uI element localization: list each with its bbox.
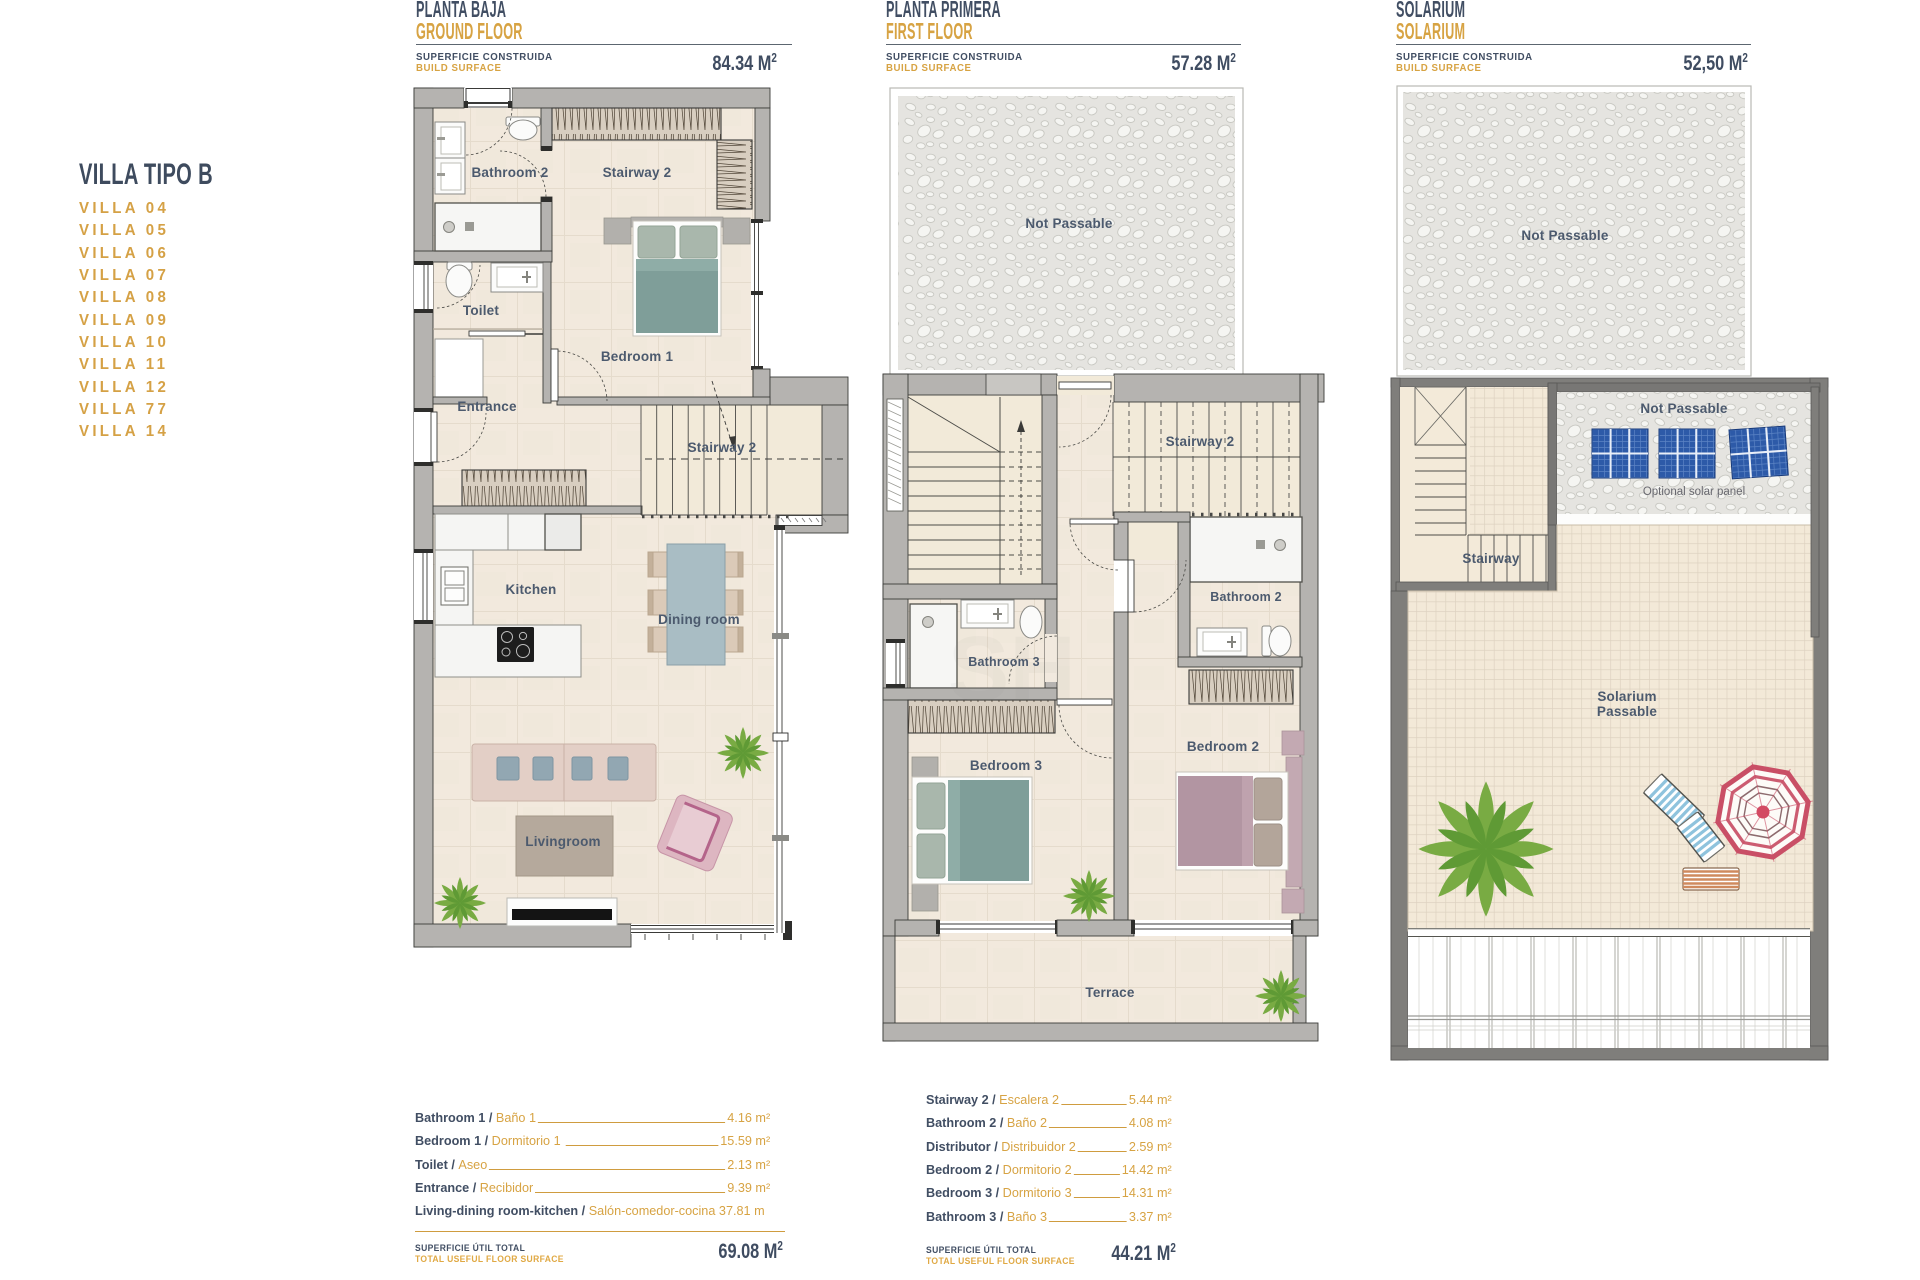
svg-text:Optional solar panel: Optional solar panel (1643, 486, 1745, 498)
svg-text:Stairway 2: Stairway 2 (1166, 434, 1235, 449)
svg-text:Toilet: Toilet (463, 303, 500, 318)
svg-text:Dining room: Dining room (658, 612, 740, 627)
svg-text:Entrance: Entrance (457, 399, 517, 414)
svg-text:Bathroom 2: Bathroom 2 (1210, 590, 1281, 604)
svg-text:Kitchen: Kitchen (506, 582, 557, 597)
svg-text:Stairway 2: Stairway 2 (688, 440, 757, 455)
svg-text:Not Passable: Not Passable (1640, 401, 1727, 416)
svg-text:Solarium: Solarium (1597, 689, 1656, 704)
svg-text:Not Passable: Not Passable (1025, 216, 1112, 231)
svg-text:Bathroom 3: Bathroom 3 (968, 655, 1039, 669)
svg-text:SH: SH (948, 618, 1076, 720)
svg-text:Bathroom 2: Bathroom 2 (471, 165, 548, 180)
svg-text:Livingroom: Livingroom (525, 834, 601, 849)
svg-text:Terrace: Terrace (1085, 985, 1134, 1000)
svg-text:Stairway 2: Stairway 2 (603, 165, 672, 180)
svg-text:Not Passable: Not Passable (1521, 228, 1608, 243)
svg-text:Bedroom 2: Bedroom 2 (1187, 739, 1259, 754)
svg-text:Bedroom 1: Bedroom 1 (601, 349, 674, 364)
svg-text:Passable: Passable (1597, 704, 1657, 719)
svg-text:Stairway: Stairway (1462, 551, 1519, 566)
svg-text:Bedroom 3: Bedroom 3 (970, 758, 1043, 773)
